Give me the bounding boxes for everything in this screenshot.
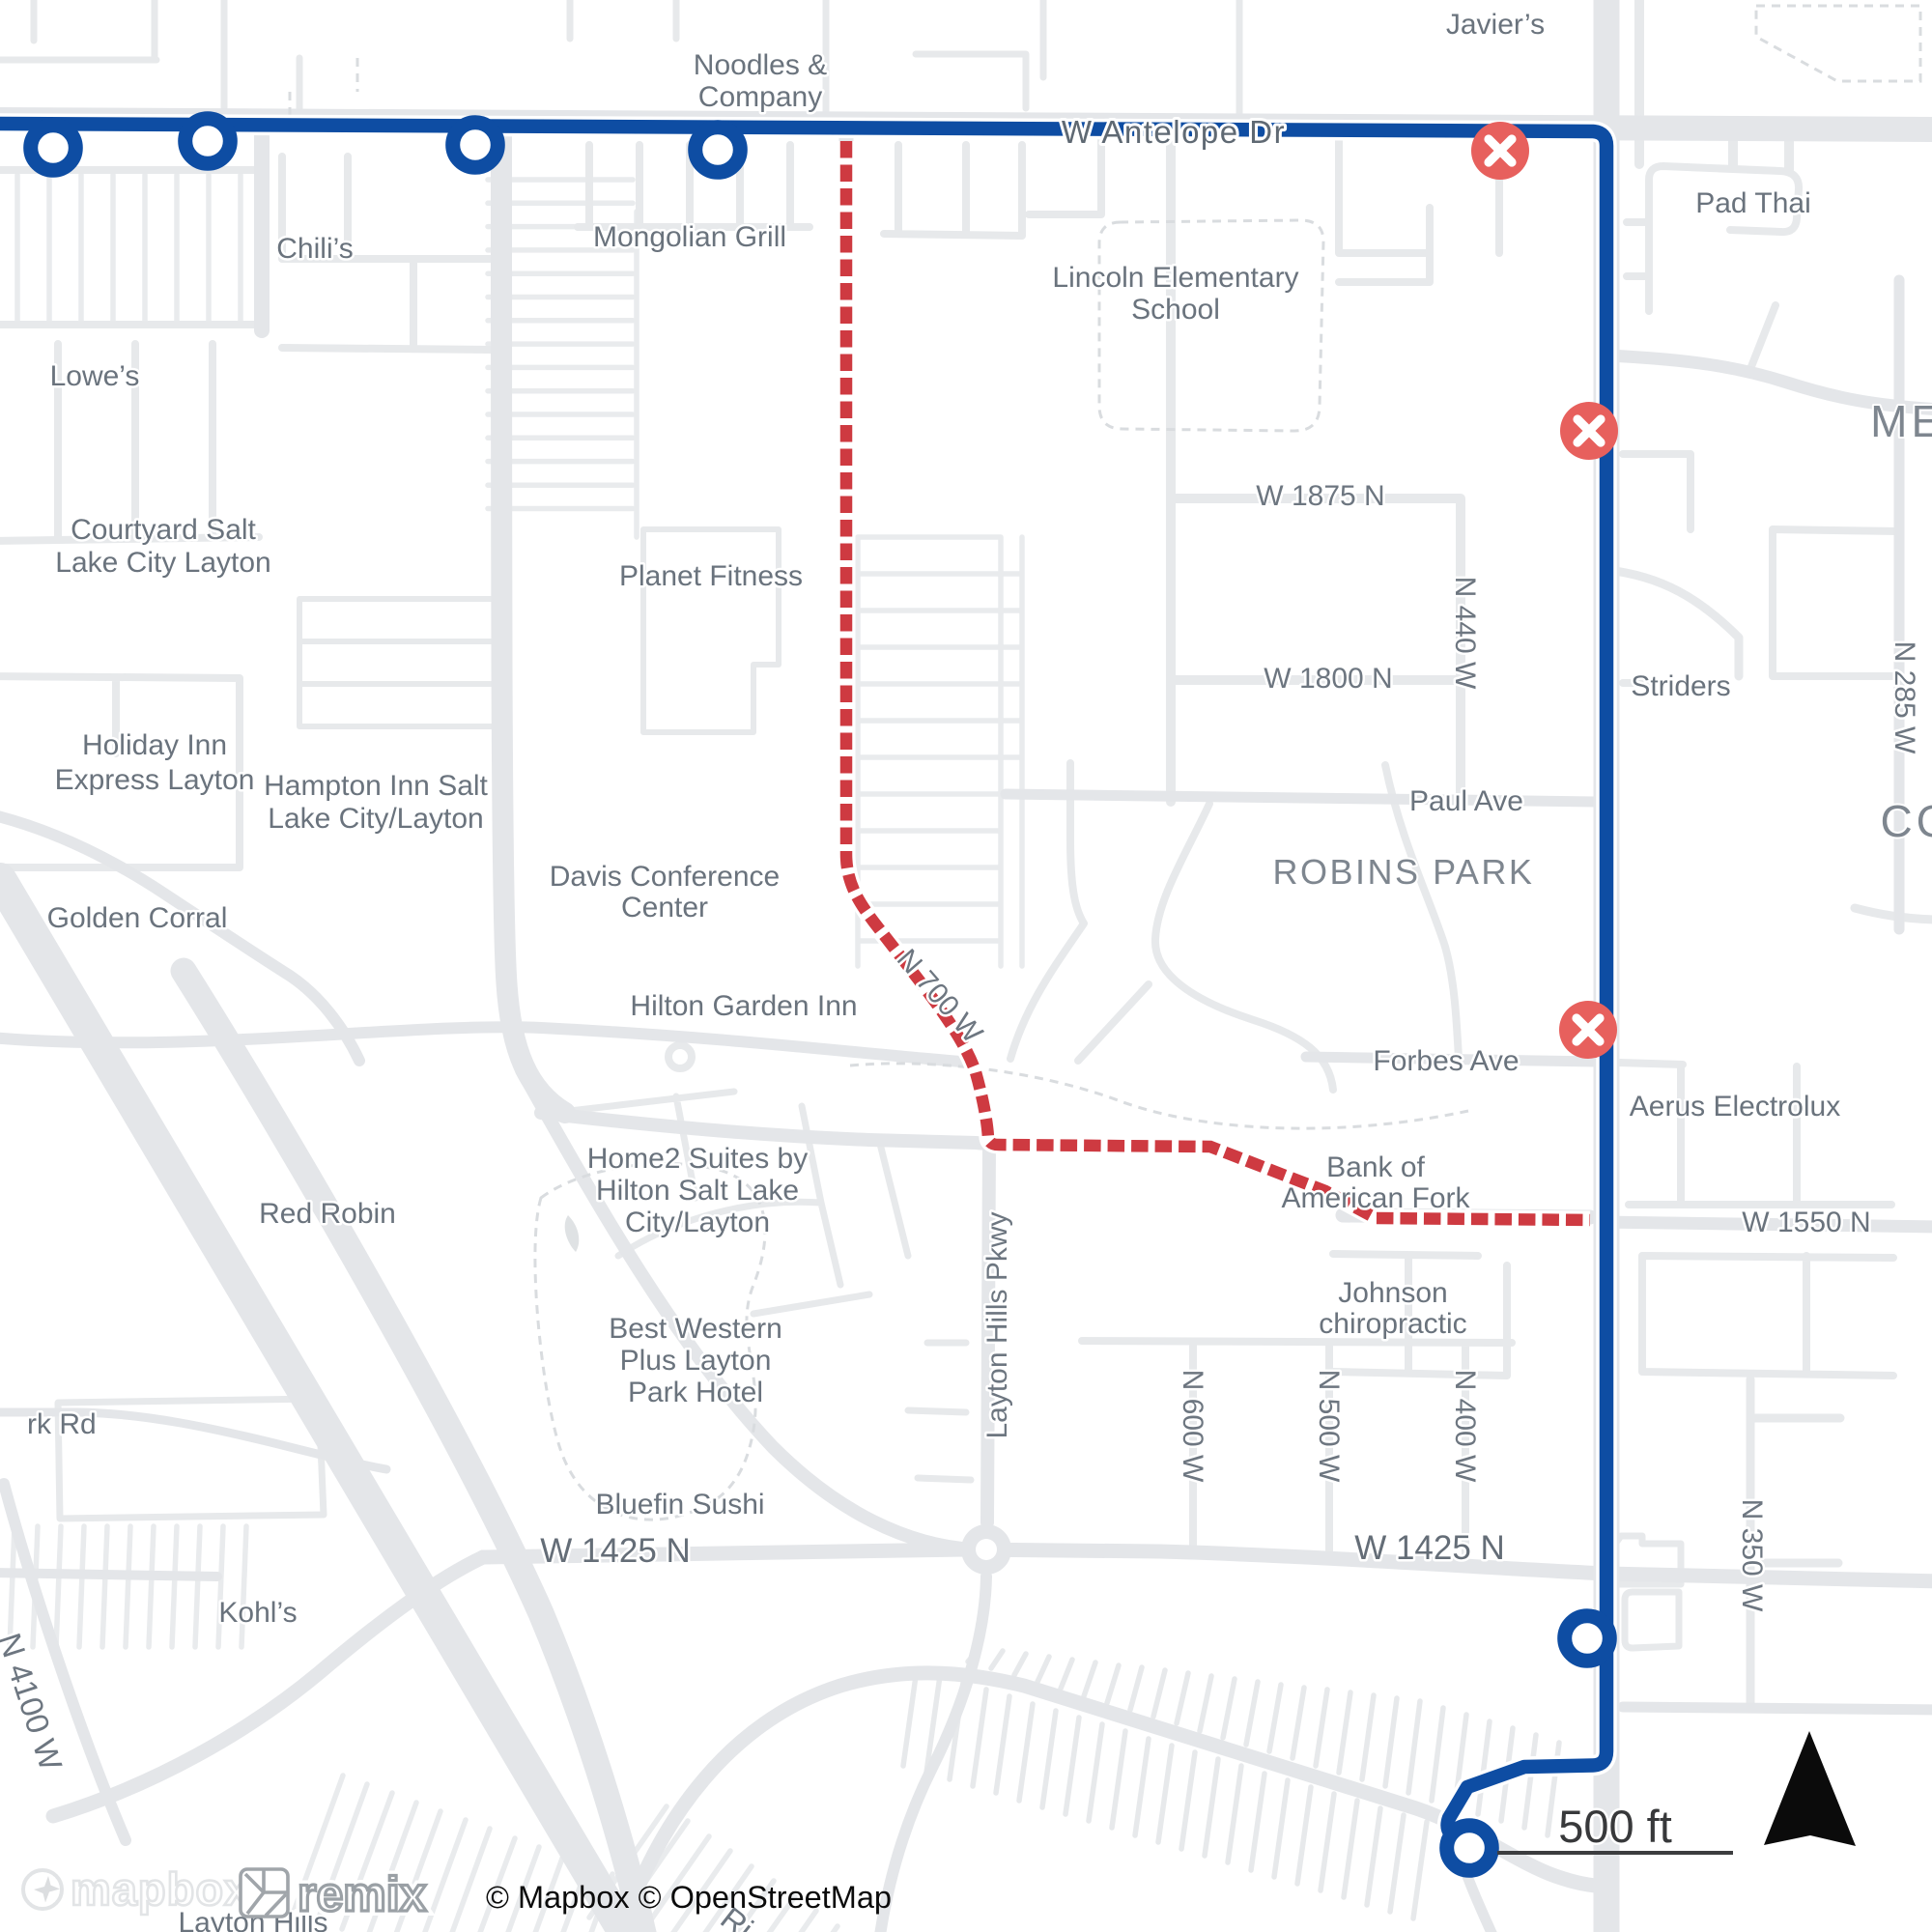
svg-text:Pad Thai: Pad Thai (1695, 187, 1811, 219)
svg-text:Kohl’s: Kohl’s (218, 1597, 297, 1629)
svg-text:N 285 W: N 285 W (1889, 641, 1920, 754)
svg-text:Lincoln Elementary: Lincoln Elementary (1052, 262, 1298, 294)
svg-text:W 1800 N: W 1800 N (1264, 663, 1392, 695)
svg-text:Layton Hills Pkwy: Layton Hills Pkwy (981, 1211, 1013, 1438)
svg-text:Center: Center (621, 892, 708, 923)
svg-text:mapbox: mapbox (71, 1863, 250, 1915)
svg-text:Noodles &: Noodles & (694, 49, 827, 81)
svg-text:Holiday Inn: Holiday Inn (82, 729, 227, 761)
svg-text:Lake City Layton: Lake City Layton (55, 547, 270, 579)
svg-text:Bank of: Bank of (1326, 1151, 1425, 1183)
svg-text:Johnson: Johnson (1338, 1277, 1447, 1309)
svg-text:W 1550 N: W 1550 N (1742, 1207, 1870, 1238)
svg-text:Bluefin Sushi: Bluefin Sushi (595, 1489, 764, 1520)
svg-text:500 ft: 500 ft (1558, 1801, 1672, 1852)
svg-text:© Mapbox © OpenStreetMap: © Mapbox © OpenStreetMap (486, 1880, 892, 1915)
svg-text:Best Western: Best Western (609, 1313, 782, 1345)
svg-text:CO: CO (1881, 796, 1932, 846)
svg-text:Mongolian Grill: Mongolian Grill (593, 221, 786, 253)
svg-text:Home2 Suites by: Home2 Suites by (587, 1143, 808, 1175)
svg-text:Hilton Salt Lake: Hilton Salt Lake (596, 1175, 799, 1207)
svg-text:Chili’s: Chili’s (276, 233, 353, 265)
svg-text:Express Layton: Express Layton (55, 764, 255, 796)
svg-text:Aerus Electrolux: Aerus Electrolux (1630, 1091, 1840, 1122)
svg-text:Lowe’s: Lowe’s (50, 360, 140, 392)
svg-text:N 350 W: N 350 W (1736, 1499, 1768, 1612)
svg-text:Park Hotel: Park Hotel (628, 1377, 763, 1408)
svg-text:W 1425 N: W 1425 N (1354, 1529, 1505, 1567)
svg-text:N 500 W: N 500 W (1313, 1370, 1345, 1483)
svg-text:N 440 W: N 440 W (1449, 577, 1481, 690)
svg-text:chiropractic: chiropractic (1319, 1308, 1466, 1340)
svg-text:Striders: Striders (1631, 670, 1730, 702)
svg-text:City/Layton: City/Layton (625, 1207, 770, 1238)
svg-text:Courtyard Salt: Courtyard Salt (71, 514, 256, 546)
svg-text:Davis Conference: Davis Conference (550, 861, 780, 893)
svg-text:N 600 W: N 600 W (1177, 1370, 1208, 1483)
svg-text:Planet Fitness: Planet Fitness (619, 560, 803, 592)
svg-text:American Fork: American Fork (1281, 1182, 1470, 1214)
svg-text:School: School (1131, 294, 1220, 326)
svg-text:Plus Layton: Plus Layton (620, 1345, 772, 1377)
svg-text:N 400 W: N 400 W (1449, 1370, 1481, 1483)
svg-text:remix: remix (298, 1867, 427, 1921)
svg-text:Javier’s: Javier’s (1446, 9, 1545, 41)
svg-text:Red Robin: Red Robin (259, 1198, 396, 1230)
svg-text:Golden Corral: Golden Corral (47, 902, 228, 934)
svg-text:rk Rd: rk Rd (27, 1408, 97, 1440)
svg-text:ROBINS PARK: ROBINS PARK (1273, 852, 1535, 892)
svg-text:W 1425 N: W 1425 N (540, 1532, 691, 1570)
svg-text:W 1875 N: W 1875 N (1256, 480, 1384, 512)
svg-text:Forbes Ave: Forbes Ave (1373, 1045, 1519, 1077)
svg-text:W Antelope Dr: W Antelope Dr (1062, 114, 1286, 150)
svg-text:Company: Company (698, 81, 822, 113)
svg-text:Lake City/Layton: Lake City/Layton (268, 803, 483, 835)
svg-text:Hilton Garden Inn: Hilton Garden Inn (630, 990, 857, 1022)
svg-text:MEA: MEA (1870, 396, 1932, 446)
svg-text:Paul Ave: Paul Ave (1409, 785, 1523, 817)
svg-text:Hampton Inn Salt: Hampton Inn Salt (264, 770, 488, 802)
